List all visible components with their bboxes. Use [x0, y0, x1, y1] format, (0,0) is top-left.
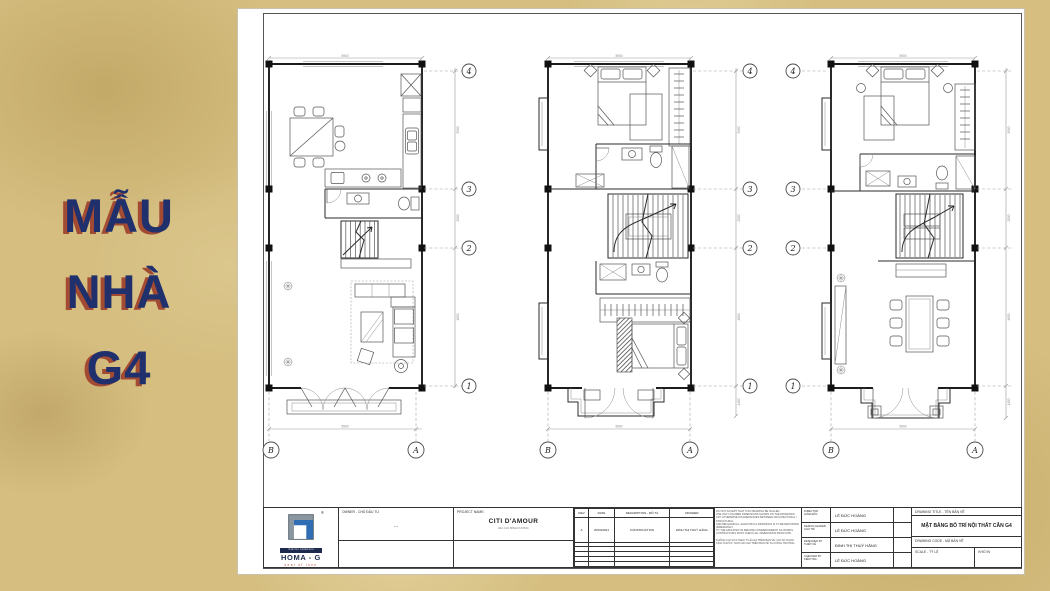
dim-label: 3900	[737, 126, 741, 133]
dim-label: 3900	[456, 126, 460, 133]
owner-value: ...	[339, 523, 453, 529]
note-line: KÍCH THƯỚC THỰC ĐO GHI TRÊN BẢN VẼ TẠI C…	[716, 542, 799, 545]
bathroom-upper	[548, 144, 691, 189]
slide-title-line: NHÀ	[0, 254, 238, 330]
dim-label: 5900	[615, 54, 622, 58]
homa-g-logo-icon	[286, 512, 316, 542]
hall-cabinet	[341, 259, 411, 268]
closet-rack	[600, 298, 690, 322]
columns	[828, 61, 979, 392]
personnel-row: DIRECTOR GIÁM ĐỐC LÊ ĐỨC HOÀNG	[802, 508, 911, 523]
personnel-row: DESIGNED BY THIẾT KẾ ĐINH THỊ THUỲ HẰNG	[802, 538, 911, 553]
grid-bubble-1: 1	[790, 382, 795, 391]
owner-label: OWNER - CHỦ ĐẦU TƯ	[339, 508, 453, 514]
grid-bubble-A: A	[686, 446, 693, 455]
console-table	[896, 264, 946, 277]
slide-title: MẪU NHÀ G4	[0, 178, 238, 406]
revision-table: REV DATE DESCRIPTION - MÔ TẢ DRAWER A 20…	[574, 508, 714, 567]
grid-bubble-3: 3	[790, 185, 795, 194]
revision-row	[575, 562, 715, 567]
person-name: ĐINH THỊ THUỲ HẰNG	[831, 538, 894, 552]
rev-cell: 20/03/2021	[589, 518, 615, 543]
rev-cell: ĐINH THỊ THUỲ HẰNG	[670, 518, 715, 543]
dim-label: 5900	[899, 54, 906, 58]
drawing-title: MẶT BẰNG BỐ TRÍ NỘI THẤT CĂN G4	[912, 516, 1021, 536]
drawing-info: DRAWING TITLE - TÊN BẢN VẼ MẶT BẰNG BỐ T…	[912, 508, 1021, 567]
balcony	[861, 388, 950, 418]
wardrobe	[955, 84, 975, 150]
grid-bubble-4: 4	[746, 67, 752, 76]
bathroom-lower	[596, 261, 691, 294]
wardrobe	[669, 68, 690, 146]
dim-label: 3900	[1007, 126, 1011, 133]
title-block: ® interior solutions HOMA - G seal of lo…	[263, 507, 1022, 568]
entrance	[287, 388, 401, 414]
dim-label: 4600	[737, 313, 741, 320]
grid-bubble-2: 2	[746, 244, 752, 253]
floor-plan-first-floor: 5900 3900 2000 4600 4 3 2 1	[263, 56, 491, 466]
grid-bubble-A: A	[971, 446, 978, 455]
wall-mirror	[835, 286, 846, 364]
general-notes: DO NOT ACCEPT THAT THIS DRAWING BE SCALE…	[714, 508, 802, 567]
personnel-table: DIRECTOR GIÁM ĐỐC LÊ ĐỨC HOÀNG DESIGN LE…	[802, 508, 912, 567]
rev-header: REV	[575, 509, 589, 518]
walls	[267, 62, 424, 390]
stairs	[608, 194, 688, 258]
person-name: LÊ ĐỨC HOÀNG	[831, 523, 894, 537]
drawing-sheet: 5900 3900 2000 4600 4 3 2 1	[237, 8, 1025, 575]
dim-label: 5900	[615, 425, 622, 429]
dim-label: 2000	[1007, 214, 1011, 221]
bed-third	[857, 64, 953, 125]
walls	[822, 62, 976, 390]
dim-label: 5900	[341, 54, 348, 58]
grid-bubble-2: 2	[789, 244, 795, 253]
slide-title-line: G4	[0, 330, 238, 406]
grid-bubble-3: 3	[747, 185, 752, 194]
grid-bubble-4: 4	[789, 67, 795, 76]
scale-label: SCALE - TỶ LỆ	[912, 548, 974, 554]
wc	[325, 189, 422, 218]
registered-mark: ®	[321, 510, 324, 515]
project-name: CITI D'AMOUR	[454, 518, 573, 525]
plant-symbols	[284, 282, 292, 366]
logo-tagline: seal of love	[264, 563, 338, 567]
bedroom-rug	[864, 96, 894, 140]
dim-label: 1400	[1007, 398, 1011, 405]
dim-label: 5900	[899, 425, 906, 429]
bed-second	[617, 312, 690, 379]
bathroom	[831, 154, 975, 191]
island-counter	[325, 169, 401, 187]
living-room	[351, 281, 415, 373]
paper-label: KHỔ IN	[975, 548, 1021, 554]
stairs	[341, 221, 378, 258]
owner-cell: OWNER - CHỦ ĐẦU TƯ ...	[339, 508, 454, 567]
rev-header: DATE	[589, 509, 615, 518]
grid-bubble-A: A	[412, 446, 419, 455]
project-label: PROJECT NAME:	[454, 508, 573, 514]
grid-bubble-1: 1	[747, 382, 752, 391]
role-label-vi: GIÁM ĐỐC	[804, 513, 830, 516]
grid-bubble-B: B	[544, 446, 551, 455]
revision-row: A 20/03/2021 CONSTRUCTION ĐINH THỊ THUỲ …	[575, 518, 715, 543]
role-label-vi: KIỂM TRA	[804, 558, 830, 561]
dining-set	[290, 107, 345, 167]
rev-header: DRAWER	[670, 509, 715, 518]
logo-small-line: interior solutions	[280, 548, 322, 553]
drawing-title-label: DRAWING TITLE - TÊN BẢN VẼ	[912, 508, 1021, 514]
person-name: LÊ ĐỨC HOÀNG	[831, 553, 894, 567]
grid-dimensions: 5900 3900 2000 4600 1400	[786, 54, 1013, 458]
bed-master	[584, 64, 660, 125]
dining-set	[890, 296, 949, 352]
rev-cell: CONSTRUCTION	[615, 518, 670, 543]
logo-brand: HOMA - G	[264, 553, 338, 562]
slide-title-line: MẪU	[0, 178, 238, 254]
note-line: CONTRACTORS MUST CHECK ALL DIMENSIONS FR…	[716, 532, 799, 535]
dim-label: 4600	[456, 313, 460, 320]
grid-dimensions: 5900 3900 2000 4600 1400 4 3	[540, 54, 757, 458]
stairs	[878, 194, 975, 261]
presentation-slide: MẪU NHÀ G4	[0, 0, 1050, 591]
person-name: LÊ ĐỨC HOÀNG	[831, 508, 894, 522]
grid-bubble-B: B	[267, 446, 274, 455]
kitchen	[401, 74, 421, 188]
grid-bubble-3: 3	[466, 185, 471, 194]
balcony	[568, 388, 664, 418]
plant-symbols	[837, 274, 845, 374]
grid-bubble-1: 1	[466, 382, 471, 391]
dim-label: 2000	[456, 214, 460, 221]
grid-bubble-4: 4	[465, 67, 471, 76]
company-logo: ® interior solutions HOMA - G seal of lo…	[264, 508, 339, 567]
personnel-row: CHECKED BY KIỂM TRA LÊ ĐỨC HOÀNG	[802, 553, 911, 567]
role-label-vi: CHỦ TRÌ	[804, 528, 830, 531]
dim-label: 5900	[341, 425, 348, 429]
personnel-row: DESIGN LEADER CHỦ TRÌ LÊ ĐỨC HOÀNG	[802, 523, 911, 538]
rev-header: DESCRIPTION - MÔ TẢ	[615, 509, 670, 518]
grid-bubble-2: 2	[465, 244, 471, 253]
grid-bubble-B: B	[827, 446, 834, 455]
project-cell: PROJECT NAME: CITI D'AMOUR ĐỊA CHỈ: BÌNH…	[454, 508, 574, 567]
dim-label: 4600	[1007, 313, 1011, 320]
role-label-vi: THIẾT KẾ	[804, 543, 830, 546]
dim-label: 1400	[737, 398, 741, 405]
dim-label: 2000	[737, 214, 741, 221]
rev-cell: A	[575, 518, 589, 543]
drawing-code-label: DRAWING CODE - MÃ BẢN VẼ	[912, 537, 1021, 543]
floor-plan-second-floor: 5900 3900 2000 4600 1400 4 3	[538, 56, 766, 466]
floor-plan-third-floor: 5900 3900 2000 4600 1400	[778, 56, 1028, 466]
project-address: ĐỊA CHỈ: BÌNH DƯƠNG	[454, 526, 573, 530]
